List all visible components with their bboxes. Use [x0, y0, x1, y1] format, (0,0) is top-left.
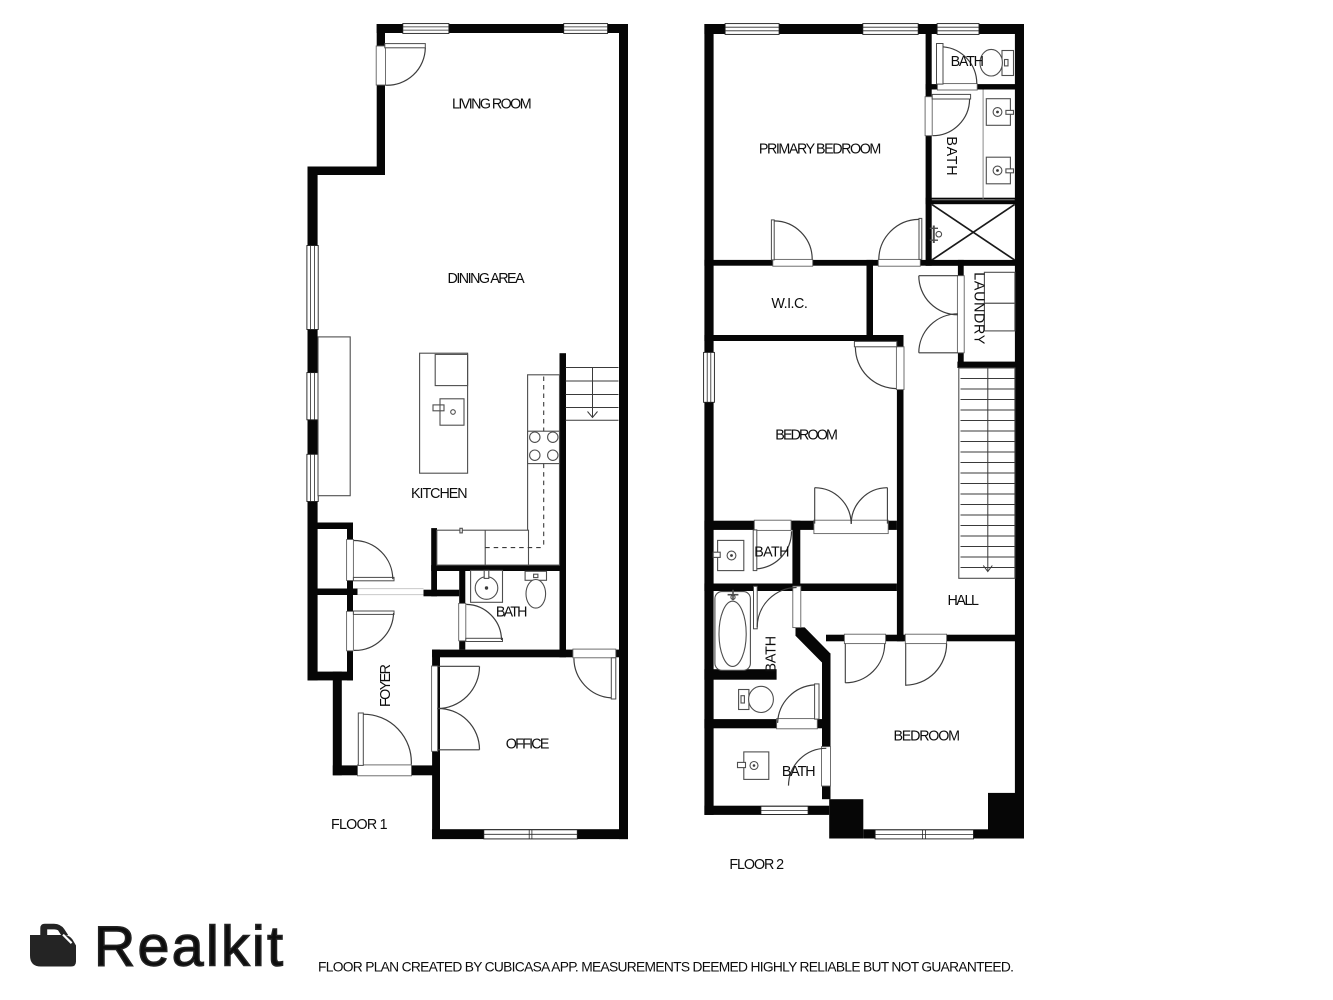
svg-text:OFFICE: OFFICE: [506, 736, 550, 752]
svg-text:PRIMARY BEDROOM: PRIMARY BEDROOM: [759, 141, 882, 157]
svg-text:BATH: BATH: [754, 545, 790, 561]
svg-text:BATH: BATH: [764, 636, 780, 673]
svg-text:BATH: BATH: [496, 604, 528, 620]
svg-text:LAUNDRY: LAUNDRY: [971, 272, 987, 344]
svg-text:FLOOR 1: FLOOR 1: [331, 817, 388, 833]
svg-text:DINING AREA: DINING AREA: [448, 271, 526, 287]
svg-text:HALL: HALL: [948, 593, 980, 609]
svg-text:KITCHEN: KITCHEN: [411, 486, 468, 502]
svg-text:BEDROOM: BEDROOM: [894, 729, 961, 745]
svg-text:BATH: BATH: [943, 136, 959, 176]
svg-text:FOYER: FOYER: [378, 664, 394, 707]
svg-text:BEDROOM: BEDROOM: [775, 428, 838, 444]
svg-text:BATH: BATH: [951, 54, 985, 70]
svg-text:W.I.C.: W.I.C.: [771, 296, 808, 312]
svg-text:BATH: BATH: [782, 764, 816, 780]
svg-text:LIVING ROOM: LIVING ROOM: [452, 97, 532, 113]
svg-text:Realkit: Realkit: [94, 915, 283, 979]
svg-text:FLOOR PLAN CREATED BY CUBICASA: FLOOR PLAN CREATED BY CUBICASA APP. MEAS…: [318, 960, 1014, 975]
svg-text:FLOOR 2: FLOOR 2: [729, 857, 784, 873]
